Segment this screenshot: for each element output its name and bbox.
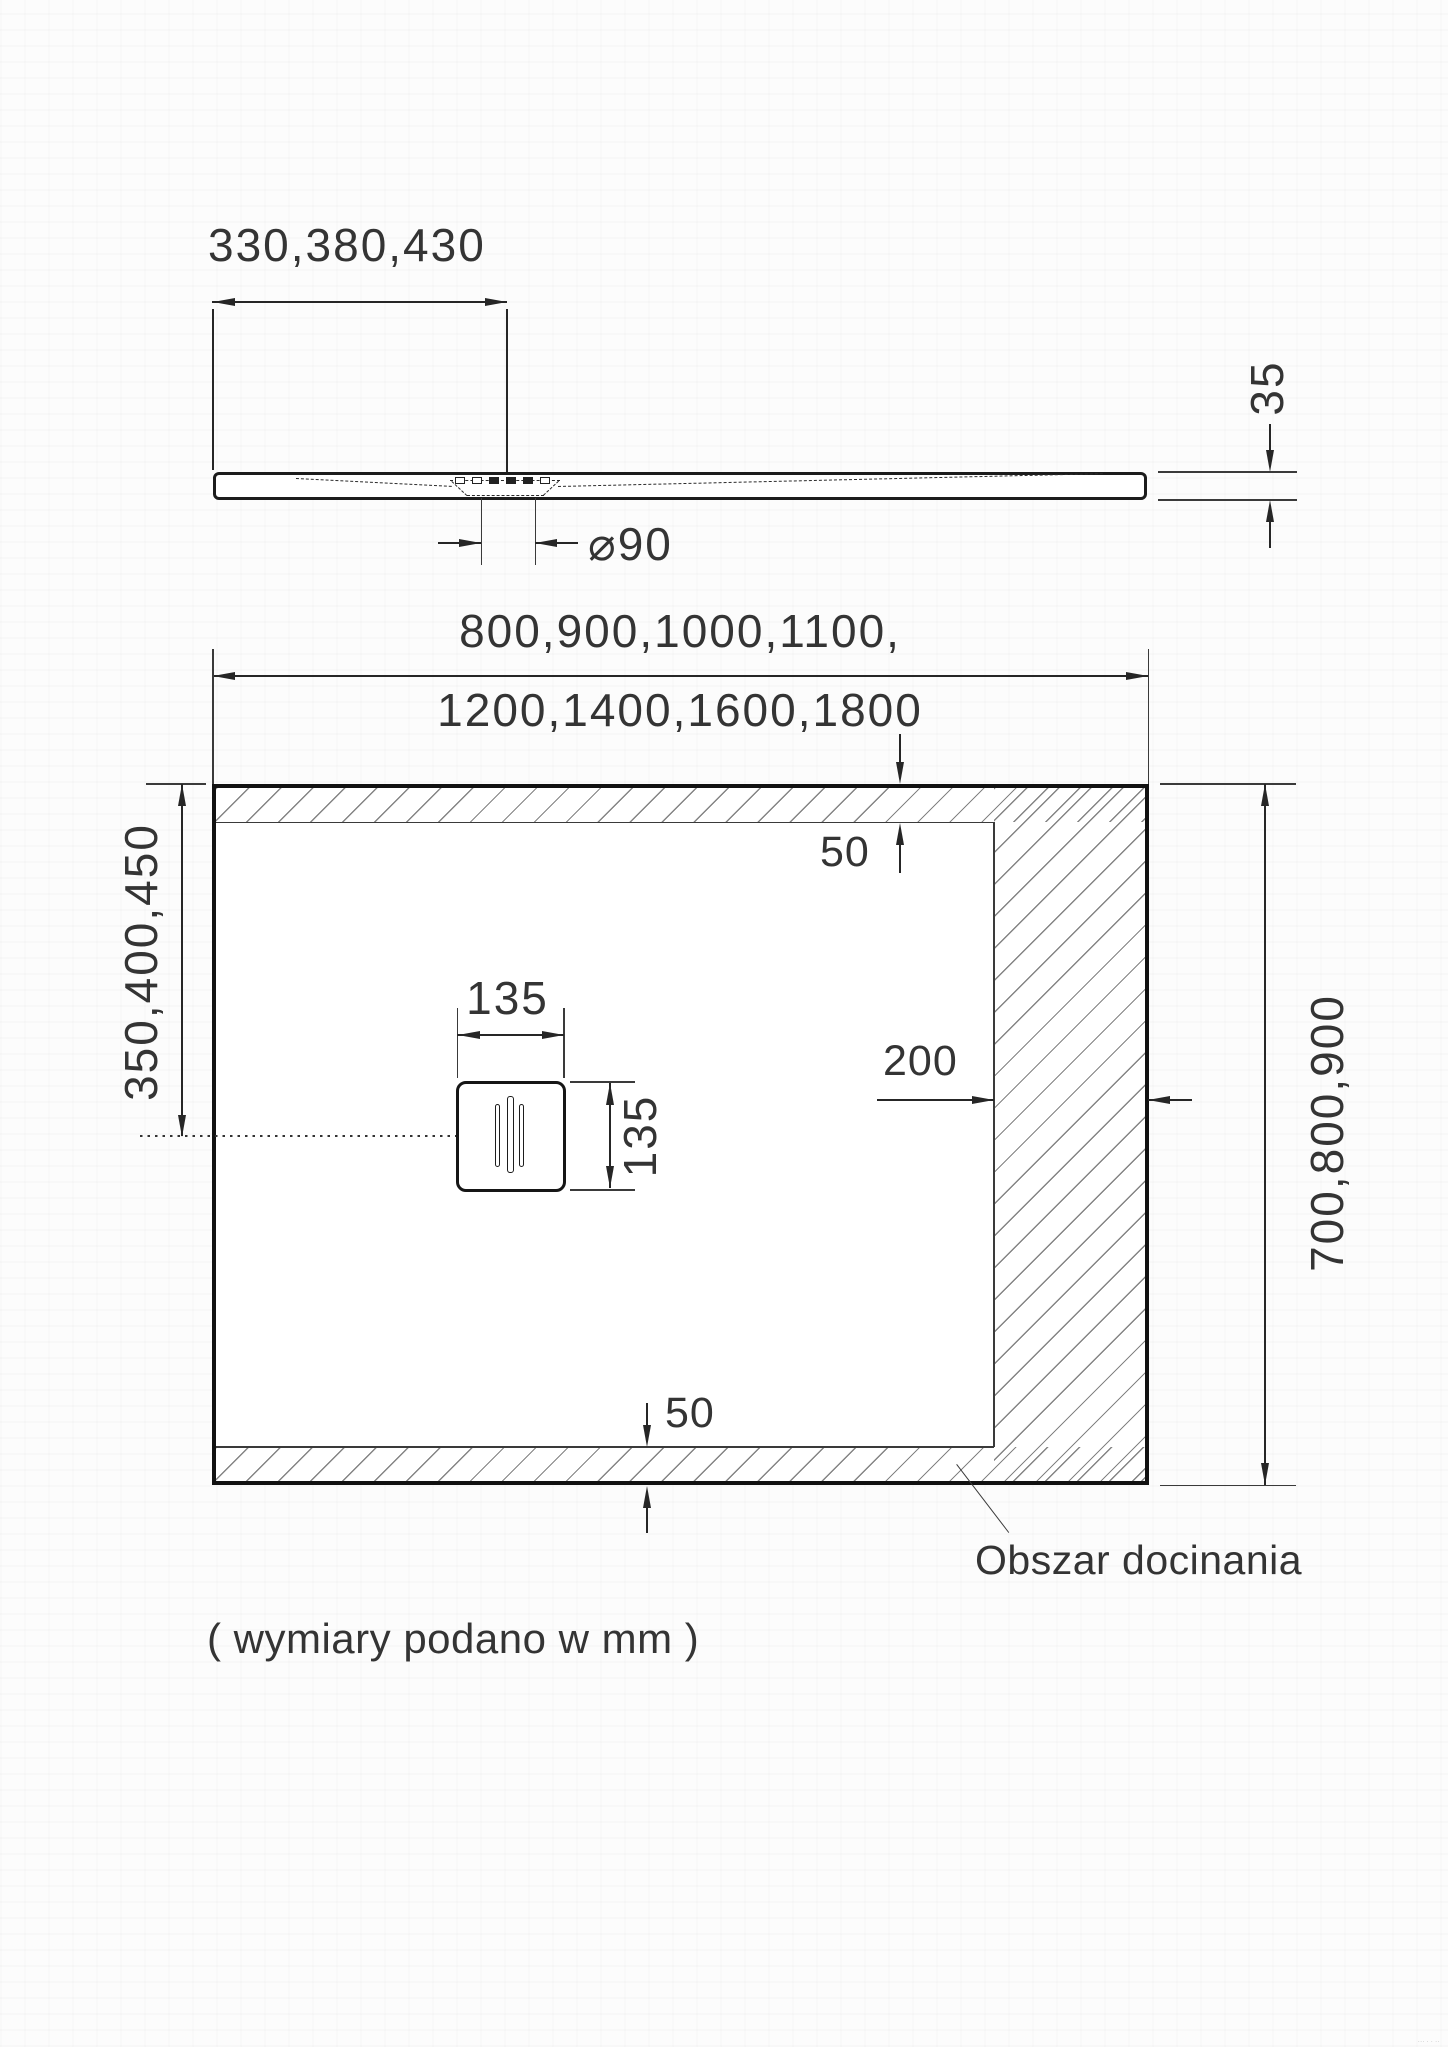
side-extension-line-drain-center (506, 309, 507, 479)
thickness-dim-label: 35 (1244, 360, 1290, 415)
arrowhead-down-icon (643, 1425, 651, 1447)
cut-bottom-dim-stem-inner (646, 1403, 647, 1425)
plan-width-dim-label-line1: 800,900,1000,1100, (380, 608, 980, 654)
cut-top-dim-stem-outer (899, 734, 900, 762)
left-dim-label: 350,400,450 (118, 823, 164, 1101)
drain-slot (519, 1104, 525, 1167)
cut-area-label: Obszar docinania (975, 1540, 1302, 1581)
arrowhead-up-icon (1266, 500, 1274, 522)
height-dim-label: 700,800,900 (1304, 994, 1350, 1272)
drain-slot (507, 1096, 514, 1173)
units-note: ( wymiary podano w mm ) (207, 1618, 699, 1660)
drain-trap-dashed-bottom (467, 495, 544, 496)
side-drain-offset-dim-label: 330,380,430 (208, 222, 486, 268)
arrowhead-down-icon (606, 1166, 614, 1188)
thickness-extension-top (1158, 471, 1297, 472)
height-extension-bottom (1160, 1485, 1296, 1486)
arrowhead-down-icon (1266, 450, 1274, 472)
cut-bottom-dim-stem-outer (646, 1508, 647, 1533)
height-dim-line (1264, 784, 1265, 1485)
drain-diameter-dim-label: ⌀90 (588, 521, 673, 567)
thickness-extension-bottom (1158, 499, 1297, 500)
drain-height-dim-label: 135 (617, 1095, 663, 1178)
arrowhead-up-icon (643, 1486, 651, 1508)
cut-area-inner-line-top (216, 822, 994, 823)
footer-micro-text: ··· · · ·· ···· ·· (1418, 2039, 1448, 2047)
arrowhead-down-icon (1261, 1463, 1269, 1485)
thickness-dim-stem-top (1269, 424, 1270, 450)
arrowhead-left-icon (458, 1031, 480, 1039)
arrowhead-down-icon (896, 762, 904, 784)
drain-slot (495, 1104, 501, 1167)
arrowhead-right-icon (485, 298, 507, 306)
height-extension-top (1160, 783, 1296, 784)
cut-top-dim-stem-inner (899, 845, 900, 873)
drain-width-extension-left (457, 1008, 458, 1078)
cut-area-hatch-right (994, 788, 1145, 1481)
arrowhead-up-icon (178, 784, 186, 806)
cut-bottom-dim-label: 50 (665, 1392, 715, 1435)
cut-top-dim-label: 50 (820, 831, 870, 874)
side-extension-line-left (212, 309, 213, 470)
side-drain-offset-dim-line (212, 301, 507, 302)
drain-grate-tick (506, 477, 516, 484)
arrowhead-left-icon (213, 298, 235, 306)
arrowhead-left-icon (213, 672, 235, 680)
arrowhead-down-icon (178, 1115, 186, 1137)
drain-diameter-extension-right (535, 498, 536, 565)
drain-grate-tick (489, 477, 499, 484)
arrowhead-left-icon (1148, 1096, 1170, 1104)
drain-grate-tick (455, 477, 465, 484)
arrowhead-up-icon (896, 823, 904, 845)
left-dim-line (181, 784, 182, 1136)
arrowhead-left-icon (535, 539, 557, 547)
drain-grate-tick (540, 477, 550, 484)
cut-right-dim-label: 200 (883, 1040, 958, 1083)
plan-width-dim-line (212, 675, 1149, 676)
cut-area-hatch-bottom (216, 1447, 1145, 1481)
left-dim-extension-tick (146, 783, 206, 784)
thickness-dim-stem-bottom (1269, 522, 1270, 548)
arrowhead-right-icon (972, 1096, 994, 1104)
arrowhead-right-icon (542, 1031, 564, 1039)
drain-grate-tick (523, 477, 533, 484)
drain-grate-tick (472, 477, 482, 484)
drain-diameter-extension-left (481, 498, 482, 565)
cut-area-inner-line-bottom (216, 1446, 994, 1447)
plan-width-extension-right (1148, 649, 1149, 784)
plan-width-extension-left (212, 649, 213, 784)
arrowhead-right-icon (1126, 672, 1148, 680)
technical-drawing-page: 330,380,430 ⌀90 35 800,900,1000,1100, 12… (0, 0, 1448, 2047)
cut-area-inner-line-right (993, 822, 994, 1447)
drain-height-extension-bottom (570, 1189, 635, 1190)
arrowhead-up-icon (606, 1083, 614, 1105)
arrowhead-right-icon (459, 539, 481, 547)
drain-height-extension-top (570, 1081, 635, 1082)
drain-width-extension-right (563, 1008, 564, 1078)
drain-width-dim-label: 135 (440, 975, 575, 1021)
plan-width-dim-label-line2: 1200,1400,1600,1800 (380, 687, 980, 733)
arrowhead-up-icon (1261, 784, 1269, 806)
